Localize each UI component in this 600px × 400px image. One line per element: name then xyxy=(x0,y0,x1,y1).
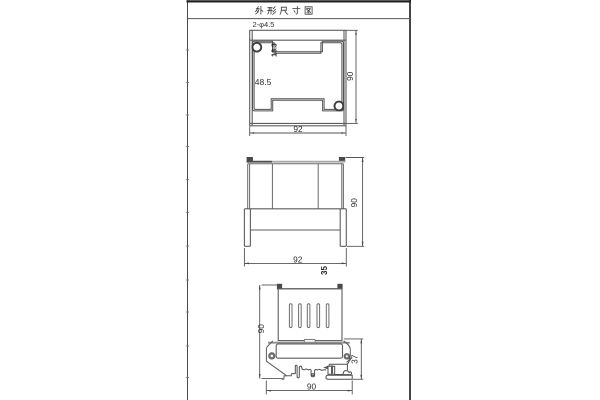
svg-text:35: 35 xyxy=(320,266,329,275)
svg-text:2-φ4.5: 2-φ4.5 xyxy=(253,20,275,29)
svg-text:90: 90 xyxy=(345,71,355,81)
svg-text:90: 90 xyxy=(256,324,266,334)
svg-text:92: 92 xyxy=(293,124,303,134)
svg-text:92: 92 xyxy=(293,254,303,264)
svg-text:90: 90 xyxy=(349,198,359,208)
svg-text:48.5: 48.5 xyxy=(255,77,272,87)
svg-text:13.3: 13.3 xyxy=(271,43,278,57)
svg-text:90: 90 xyxy=(307,382,317,392)
svg-text:37: 37 xyxy=(349,354,359,364)
